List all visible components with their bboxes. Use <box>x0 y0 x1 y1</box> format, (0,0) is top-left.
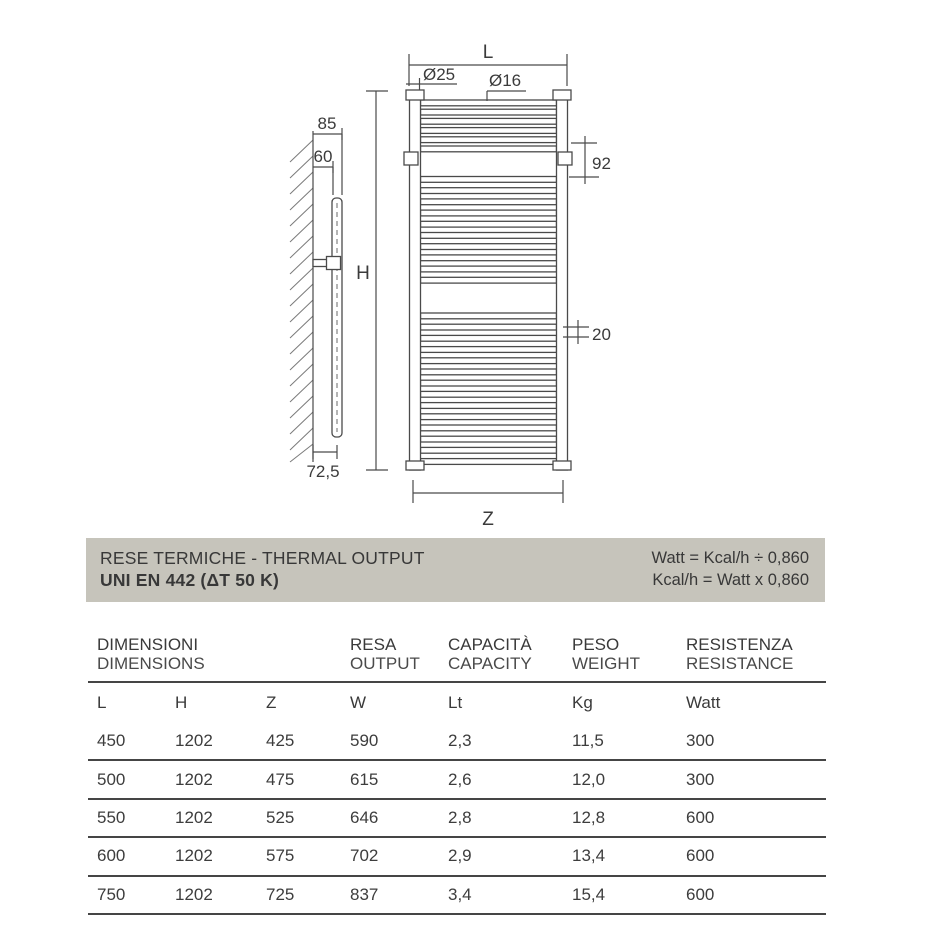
table-cell: 425 <box>266 731 350 751</box>
dim-label-72-5: 72,5 <box>306 462 339 481</box>
table-column-header-row: L H Z W Lt Kg Watt <box>88 683 826 723</box>
table-cell: 11,5 <box>572 731 686 751</box>
radiator-rung <box>421 335 557 341</box>
group-header-resistance-it: RESISTENZA <box>686 635 826 654</box>
table-row: 500 1202 475 615 2,6 12,0 300 <box>88 761 826 799</box>
column-header-Lt: Lt <box>448 693 572 713</box>
table-cell: 2,6 <box>448 770 572 790</box>
table-cell: 1202 <box>175 846 266 866</box>
radiator-rung <box>421 447 557 453</box>
radiator-rung <box>421 425 557 431</box>
conversion-formulas: Watt = Kcal/h ÷ 0,860 Kcal/h = Watt x 0,… <box>652 547 809 602</box>
banner-title-line1: RESE TERMICHE - THERMAL OUTPUT <box>100 547 425 569</box>
table-cell: 600 <box>97 846 175 866</box>
thermal-output-banner: RESE TERMICHE - THERMAL OUTPUT UNI EN 44… <box>86 538 825 602</box>
table-row: 600 1202 575 702 2,9 13,4 600 <box>88 838 826 876</box>
table-cell: 837 <box>350 885 448 905</box>
dim-label-85: 85 <box>318 114 337 133</box>
right-tube-bottom-cap <box>553 461 571 470</box>
table-cell: 750 <box>97 885 175 905</box>
column-header-Z: Z <box>266 693 350 713</box>
radiator-rung <box>421 188 557 194</box>
dim-label-Z: Z <box>482 509 494 530</box>
left-wall-bracket <box>404 152 418 165</box>
radiator-rung <box>421 210 557 216</box>
rung-groups <box>421 100 557 464</box>
radiator-rung <box>421 137 557 143</box>
radiator-rung <box>421 255 557 261</box>
table-cell: 300 <box>686 770 826 790</box>
table-cell: 550 <box>97 808 175 828</box>
table-cell: 15,4 <box>572 885 686 905</box>
radiator-rung <box>421 459 557 465</box>
radiator-rung <box>421 118 557 124</box>
radiator-rung <box>421 221 557 227</box>
group-header-capacity-it: CAPACITÀ <box>448 635 572 654</box>
datasheet-page: 85 60 72,5 H <box>0 0 950 950</box>
radiator-rung <box>421 244 557 250</box>
table-cell: 2,9 <box>448 846 572 866</box>
group-header-resistance-en: RESISTANCE <box>686 654 826 673</box>
table-cell: 13,4 <box>572 846 686 866</box>
dim-label-L: L <box>483 42 494 63</box>
radiator-rung <box>421 177 557 183</box>
radiator-rung <box>421 233 557 239</box>
table-cell: 725 <box>266 885 350 905</box>
table-row: 550 1202 525 646 2,8 12,8 600 <box>88 800 826 838</box>
group-header-output-it: RESA <box>350 635 448 654</box>
radiator-rung <box>421 324 557 330</box>
banner-title: RESE TERMICHE - THERMAL OUTPUT UNI EN 44… <box>100 547 425 602</box>
dim-label-60: 60 <box>314 147 333 166</box>
radiator-rung <box>421 199 557 205</box>
radiator-rung <box>421 277 557 283</box>
table-cell: 2,3 <box>448 731 572 751</box>
radiator-rung <box>421 266 557 272</box>
formula-line1: Watt = Kcal/h ÷ 0,860 <box>652 547 809 569</box>
right-wall-bracket <box>558 152 572 165</box>
column-header-Kg: Kg <box>572 693 686 713</box>
specification-table: DIMENSIONI DIMENSIONS RESA OUTPUT CAPACI… <box>88 630 826 915</box>
table-group-header-row: DIMENSIONI DIMENSIONS RESA OUTPUT CAPACI… <box>88 630 826 683</box>
column-header-W: W <box>350 693 448 713</box>
dim-label-20: 20 <box>592 325 611 344</box>
table-cell: 450 <box>97 731 175 751</box>
table-cell: 12,0 <box>572 770 686 790</box>
column-header-L: L <box>97 693 175 713</box>
left-tube-top-cap <box>406 90 424 100</box>
table-cell: 646 <box>350 808 448 828</box>
table-cell: 590 <box>350 731 448 751</box>
right-tube-top-cap <box>553 90 571 100</box>
table-cell: 1202 <box>175 731 266 751</box>
group-header-dimensions-it: DIMENSIONI <box>97 635 350 654</box>
radiator-rung <box>421 146 557 152</box>
table-cell: 615 <box>350 770 448 790</box>
technical-drawing: 85 60 72,5 H <box>0 0 950 535</box>
radiator-rung <box>421 369 557 375</box>
right-tube <box>557 91 568 470</box>
group-header-dimensions-en: DIMENSIONS <box>97 654 350 673</box>
formula-line2: Kcal/h = Watt x 0,860 <box>652 569 809 591</box>
radiator-rung <box>421 380 557 386</box>
dim-label-d25: Ø25 <box>423 65 455 84</box>
radiator-rung <box>421 403 557 409</box>
left-tube-bottom-cap <box>406 461 424 470</box>
table-cell: 3,4 <box>448 885 572 905</box>
group-header-weight: PESO WEIGHT <box>572 635 686 681</box>
group-header-weight-en: WEIGHT <box>572 654 686 673</box>
table-cell: 525 <box>266 808 350 828</box>
radiator-rung <box>421 436 557 442</box>
wall-hatch-pattern <box>290 140 313 462</box>
table-cell: 475 <box>266 770 350 790</box>
group-header-capacity-en: CAPACITY <box>448 654 572 673</box>
side-view-drawing: 85 60 72,5 H <box>290 91 388 481</box>
radiator-rung <box>421 347 557 353</box>
radiator-rung <box>421 100 557 106</box>
dim-label-92: 92 <box>592 154 611 173</box>
table-cell: 1202 <box>175 770 266 790</box>
dim-label-H: H <box>356 263 370 284</box>
table-cell: 600 <box>686 885 826 905</box>
table-row: 450 1202 425 590 2,3 11,5 300 <box>88 723 826 761</box>
group-header-output-en: OUTPUT <box>350 654 448 673</box>
group-header-capacity: CAPACITÀ CAPACITY <box>448 635 572 681</box>
table-row: 750 1202 725 837 3,4 15,4 600 <box>88 877 826 915</box>
radiator-rung <box>421 391 557 397</box>
table-cell: 702 <box>350 846 448 866</box>
dim-label-d16: Ø16 <box>489 71 521 90</box>
column-header-Watt: Watt <box>686 693 826 713</box>
table-cell: 1202 <box>175 885 266 905</box>
radiator-rung <box>421 414 557 420</box>
group-header-weight-it: PESO <box>572 635 686 654</box>
side-wall-bracket-clamp <box>327 257 341 270</box>
table-cell: 1202 <box>175 808 266 828</box>
left-tube <box>410 91 421 470</box>
group-header-resistance: RESISTENZA RESISTANCE <box>686 635 826 681</box>
group-header-dimensions: DIMENSIONI DIMENSIONS <box>97 635 350 681</box>
table-cell: 12,8 <box>572 808 686 828</box>
table-cell: 500 <box>97 770 175 790</box>
table-cell: 2,8 <box>448 808 572 828</box>
group-header-output: RESA OUTPUT <box>350 635 448 681</box>
table-cell: 575 <box>266 846 350 866</box>
column-header-H: H <box>175 693 266 713</box>
table-cell: 600 <box>686 808 826 828</box>
radiator-rung <box>421 128 557 134</box>
radiator-rung <box>421 313 557 319</box>
front-view-drawing: L Ø25 Ø16 92 20 Z <box>404 42 611 530</box>
table-cell: 300 <box>686 731 826 751</box>
table-cell: 600 <box>686 846 826 866</box>
radiator-rung <box>421 358 557 364</box>
banner-title-line2: UNI EN 442 (ΔT 50 K) <box>100 569 425 591</box>
radiator-rung <box>421 109 557 115</box>
